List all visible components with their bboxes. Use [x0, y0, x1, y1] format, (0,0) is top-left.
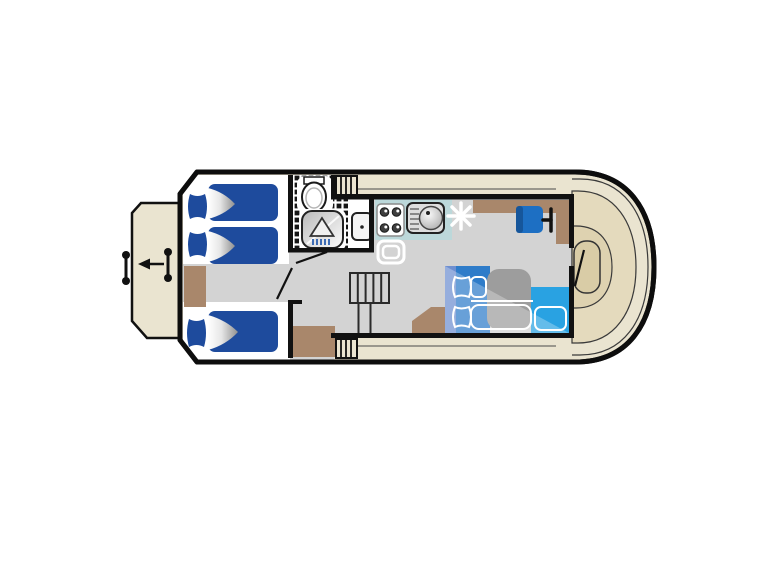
bow-locker: [574, 241, 600, 293]
bathroom-bottom-wall: [288, 248, 374, 253]
sink-with-drainer: [407, 203, 444, 233]
floor-plan-canvas: [0, 0, 768, 576]
bottom-walkway: [334, 338, 575, 360]
pillow: [188, 194, 207, 219]
toilet: [297, 176, 333, 213]
corridor-cabinet: [292, 326, 335, 357]
four-burner-hob: [377, 204, 404, 236]
heater-asterisk: [448, 203, 474, 229]
stern-swim-platform: [132, 203, 182, 338]
wardrobe: [184, 266, 206, 307]
helm-console: [556, 200, 570, 244]
boat-floor-plan: [0, 0, 768, 576]
pillow: [188, 232, 207, 257]
shower: [299, 209, 346, 251]
front-wall-upper: [569, 194, 574, 248]
platform-deck: [132, 203, 182, 338]
helm-seat-back: [516, 206, 523, 233]
bathroom-left-wall: [288, 175, 293, 252]
saloon-bottom-wall: [331, 333, 574, 338]
mooring-bollard-outer: [122, 251, 130, 285]
lower-cabin-wall: [288, 300, 293, 358]
saloon-top-wall: [331, 194, 574, 200]
bathroom-right-wall: [369, 194, 374, 252]
lower-cabin-stub: [288, 300, 302, 304]
front-wall-lower: [569, 266, 574, 338]
pillow: [187, 319, 206, 347]
top-walkway: [334, 175, 575, 196]
side-counter: [473, 200, 558, 213]
